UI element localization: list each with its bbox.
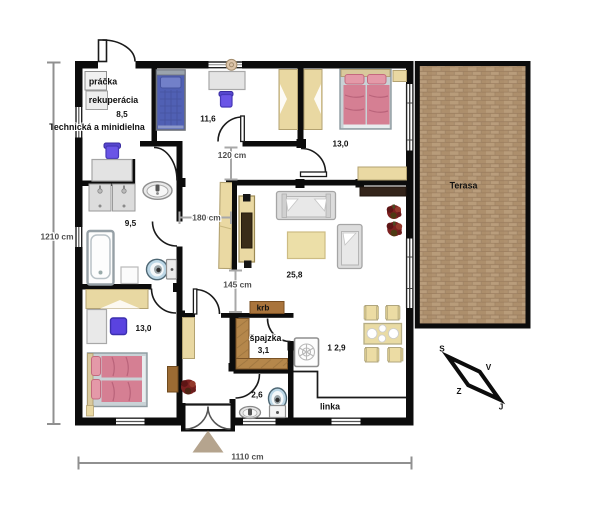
svg-text:1210 cm: 1210 cm: [40, 232, 73, 242]
svg-text:13,0: 13,0: [333, 140, 349, 149]
svg-text:S: S: [439, 345, 445, 354]
svg-text:145 cm: 145 cm: [223, 279, 251, 289]
svg-text:25,8: 25,8: [287, 270, 303, 279]
svg-text:13,0: 13,0: [136, 324, 152, 333]
svg-text:linka: linka: [320, 402, 340, 412]
svg-text:špajzka: špajzka: [250, 333, 282, 343]
svg-text:3,1: 3,1: [258, 346, 270, 355]
svg-text:2,6: 2,6: [251, 391, 263, 400]
svg-text:Terasa: Terasa: [450, 180, 478, 190]
svg-text:180 cm: 180 cm: [192, 213, 220, 223]
svg-text:8,5: 8,5: [116, 110, 128, 119]
svg-text:1110 cm: 1110 cm: [231, 452, 263, 462]
svg-text:1 2,9: 1 2,9: [327, 344, 346, 353]
svg-text:11,6: 11,6: [200, 115, 216, 124]
svg-text:Z: Z: [456, 387, 461, 396]
svg-text:120 cm: 120 cm: [218, 150, 246, 160]
svg-text:J: J: [499, 403, 504, 412]
svg-text:9,5: 9,5: [125, 219, 137, 228]
svg-text:práčka: práčka: [89, 77, 117, 87]
svg-text:V: V: [486, 363, 492, 372]
svg-text:Technická a minidielna: Technická a minidielna: [49, 122, 145, 132]
svg-text:rekuperácia: rekuperácia: [89, 95, 138, 105]
svg-text:krb: krb: [257, 304, 270, 313]
